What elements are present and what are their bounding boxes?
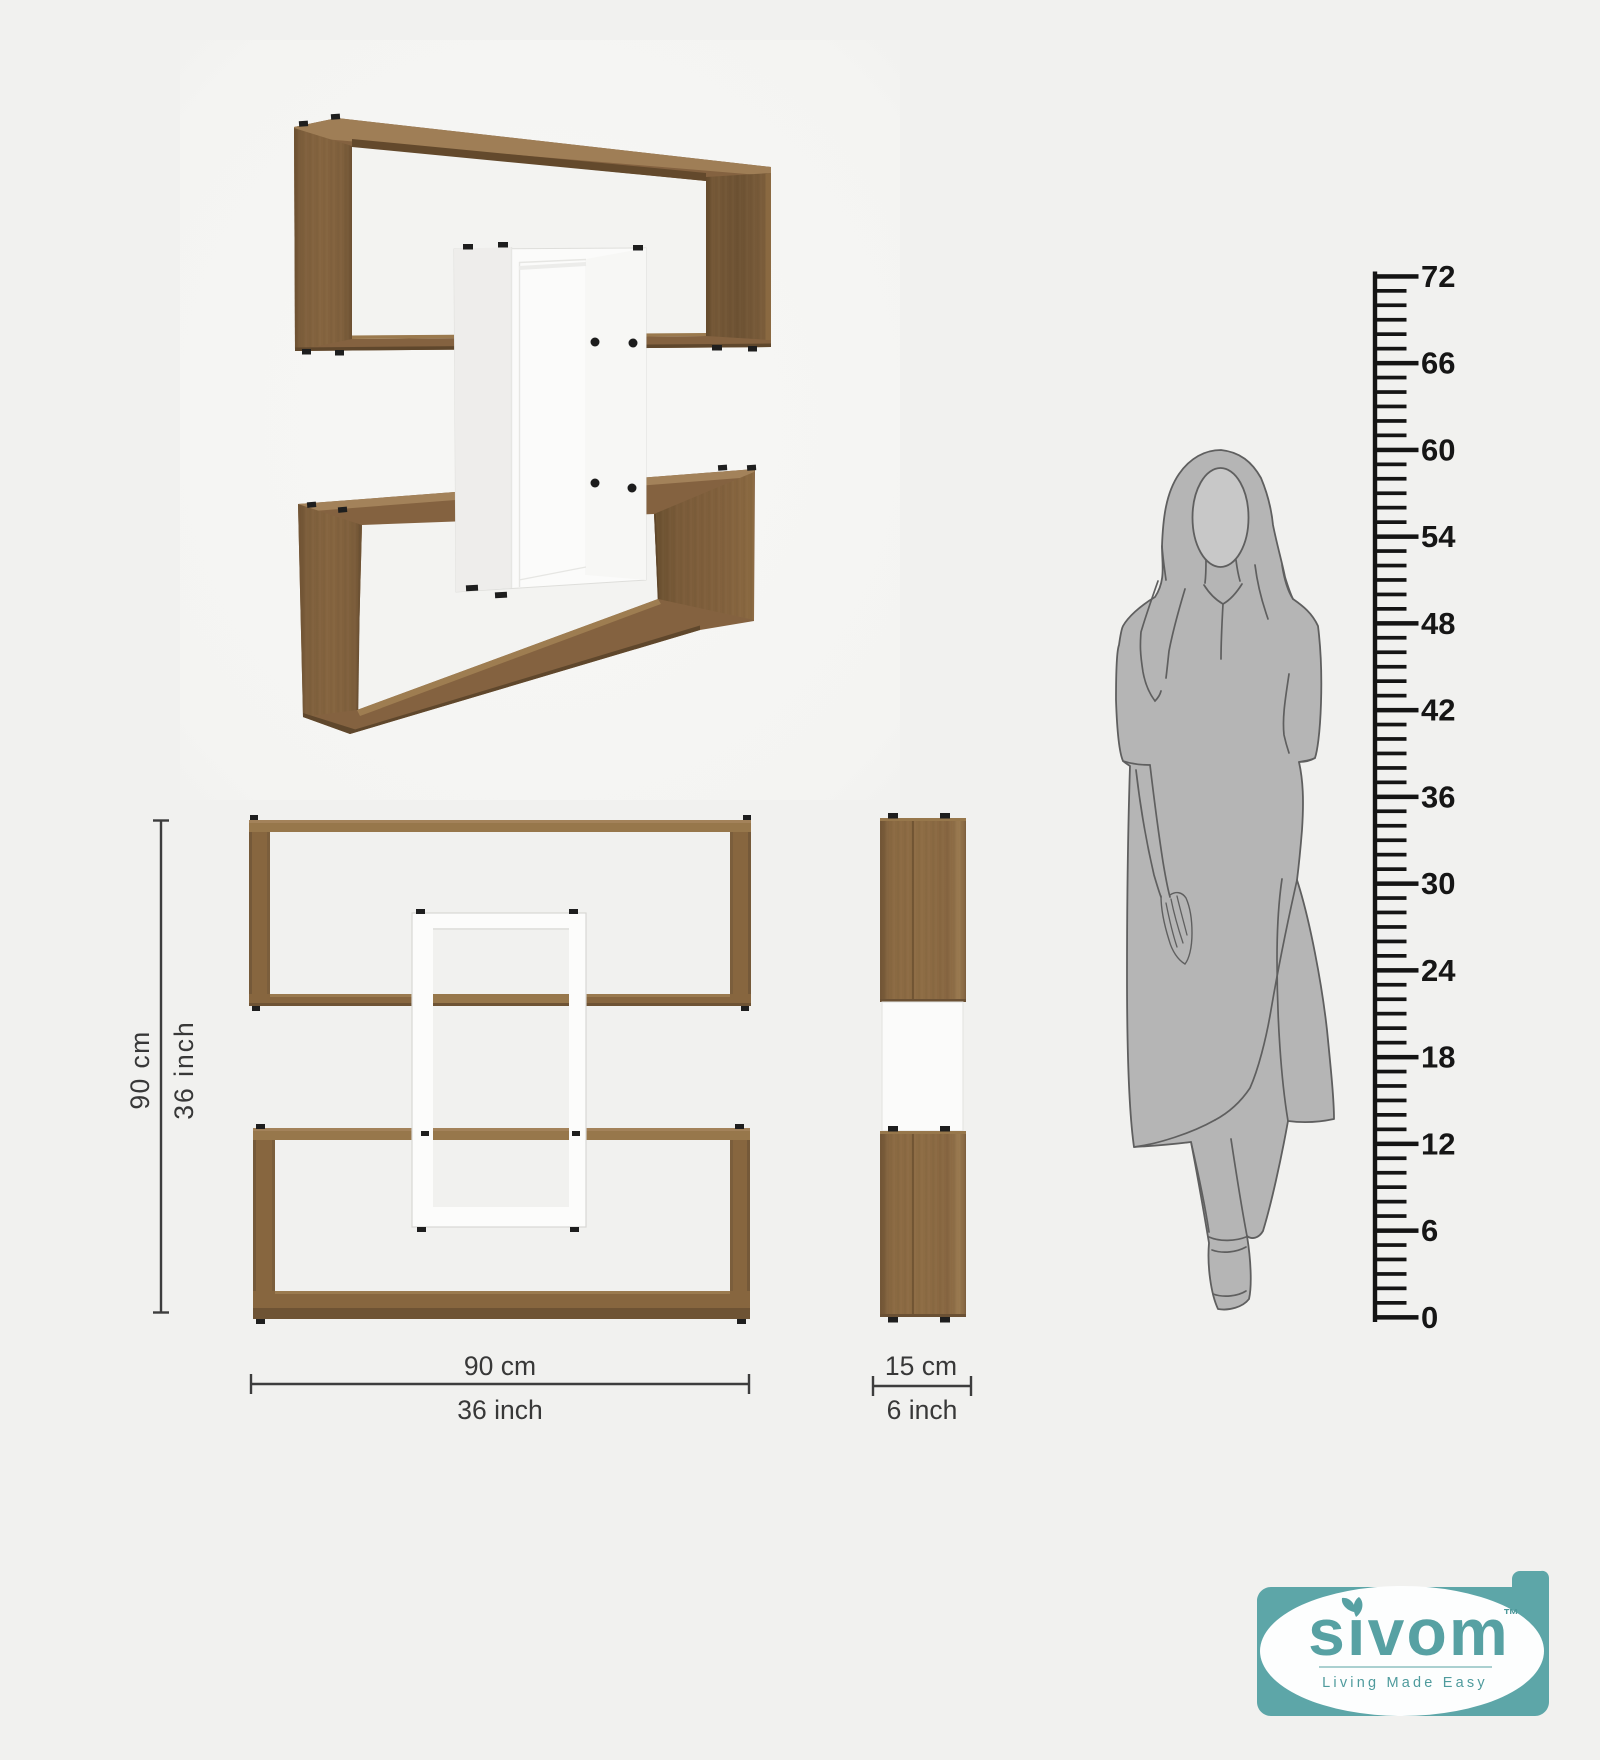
svg-text:54: 54 xyxy=(1421,519,1456,554)
svg-text:36: 36 xyxy=(1421,779,1455,814)
svg-text:18: 18 xyxy=(1421,1040,1455,1075)
svg-text:72: 72 xyxy=(1421,259,1455,294)
svg-text:sıvom: sıvom xyxy=(1308,1595,1510,1669)
svg-text:42: 42 xyxy=(1421,693,1455,728)
svg-text:6 inch: 6 inch xyxy=(887,1395,958,1425)
svg-text:™: ™ xyxy=(1503,1607,1519,1624)
svg-text:48: 48 xyxy=(1421,606,1455,641)
svg-text:66: 66 xyxy=(1421,346,1455,381)
svg-text:6: 6 xyxy=(1421,1213,1438,1248)
svg-text:90 cm: 90 cm xyxy=(464,1351,536,1381)
svg-text:36 inch: 36 inch xyxy=(457,1395,542,1425)
svg-text:30: 30 xyxy=(1421,866,1455,901)
svg-text:36 inch: 36 inch xyxy=(169,1020,199,1119)
svg-text:15 cm: 15 cm xyxy=(885,1351,957,1381)
svg-text:12: 12 xyxy=(1421,1126,1455,1161)
svg-text:90 cm: 90 cm xyxy=(125,1030,155,1109)
svg-text:0: 0 xyxy=(1421,1300,1438,1335)
svg-text:Living Made Easy: Living Made Easy xyxy=(1322,1675,1488,1691)
svg-text:60: 60 xyxy=(1421,432,1455,467)
svg-text:24: 24 xyxy=(1421,953,1456,988)
